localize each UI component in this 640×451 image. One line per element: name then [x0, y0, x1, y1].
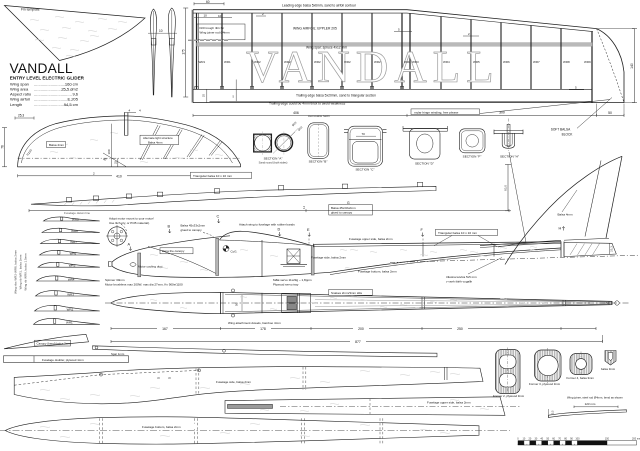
svg-text:WR7: WR7: [533, 60, 540, 64]
svg-text:Adopt motor mount to your moto: Adopt motor mount to your motor!: [109, 216, 154, 220]
svg-text:Triangular balsa 10 x 10 mm: Triangular balsa 10 x 10 mm: [193, 174, 233, 178]
svg-text:70: 70: [362, 132, 366, 136]
svg-text:WR8: WR8: [71, 229, 78, 233]
svg-text:100: 100: [107, 149, 111, 154]
svg-text:v vseh štirih vogalih: v vseh štirih vogalih: [446, 279, 473, 283]
svg-text:SECTION "B": SECTION "B": [309, 160, 328, 164]
svg-text:Drill trough rib1 for: Drill trough rib1 for: [200, 26, 225, 30]
svg-text:25,3: 25,3: [18, 114, 24, 118]
svg-text:VANDALL: VANDALL: [10, 61, 73, 76]
svg-text:5,5: 5,5: [551, 410, 555, 414]
svg-text:M&E servo 11x29g ~ 1,8ppm: M&E servo 11x29g ~ 1,8ppm: [273, 278, 312, 282]
svg-text:200: 200: [358, 327, 364, 331]
svg-text:CoG.: CoG.: [231, 250, 238, 254]
svg-text:10: 10: [159, 29, 163, 33]
svg-text:Spinner 30mm: Spinner 30mm: [105, 278, 125, 282]
svg-text:WR4: WR4: [443, 60, 450, 64]
svg-text:WR2: WR2: [404, 60, 411, 64]
svg-text:Motor brushless max 200W, max: Motor brushless max 200W, max dia 27mm, …: [105, 282, 183, 286]
svg-text:23,3: 23,3: [610, 246, 614, 252]
svg-text:WR2: WR2: [67, 307, 74, 311]
svg-text:WR9: WR9: [584, 60, 591, 64]
svg-text:SECTION "C": SECTION "C": [355, 168, 374, 172]
svg-text:ENTRY LEVEL ELECTRIC GLIDER: ENTRY LEVEL ELECTRIC GLIDER: [10, 76, 85, 81]
svg-text:25: 25: [202, 94, 206, 98]
svg-text:10: 10: [218, 14, 222, 18]
svg-text:WR2: WR2: [344, 60, 351, 64]
svg-text:glued to canopy: glued to canopy: [331, 210, 353, 214]
svg-text:SECTION "A": SECTION "A": [264, 156, 283, 160]
svg-text:WR1: WR1: [199, 60, 206, 64]
svg-text:Plywood servo tray: Plywood servo tray: [273, 282, 299, 286]
svg-text:877: 877: [355, 340, 361, 344]
svg-text:406: 406: [293, 111, 299, 115]
svg-text:balsa 3mm: balsa 3mm: [601, 367, 616, 371]
svg-text:50: 50: [608, 111, 612, 115]
svg-text:WR4: WR4: [68, 277, 75, 281]
svg-text:76: 76: [0, 145, 4, 149]
svg-text:123 mm: 123 mm: [585, 402, 596, 406]
svg-text:Wing rib WR1, balsa 2mm: Wing rib WR1, balsa 2mm: [19, 254, 23, 289]
svg-text:Wing rib WR9, balsa 1.5mm: Wing rib WR9, balsa 1.5mm: [24, 253, 28, 291]
svg-text:Attach wing to fuselage with r: Attach wing to fuselage with rubber band…: [239, 222, 295, 226]
svg-text:Balsa 45x33x2mm: Balsa 45x33x2mm: [181, 224, 206, 228]
svg-text:C: C: [217, 215, 220, 219]
svg-text:WR5: WR5: [69, 264, 76, 268]
svg-text:300: 300: [499, 111, 505, 115]
svg-text:Fuselage datum line: Fuselage datum line: [64, 211, 90, 215]
svg-text:Wing joiner, steel rod Ø4mm, b: Wing joiner, steel rod Ø4mm, bend as sho…: [567, 396, 623, 400]
svg-text:Length: Length: [10, 102, 22, 107]
svg-text:10: 10: [204, 13, 208, 17]
svg-text:Former 3, plywood 3mm: Former 3, plywood 3mm: [529, 382, 561, 386]
svg-text:Fuselage bottom, balsa 2mm: Fuselage bottom, balsa 2mm: [142, 425, 181, 429]
svg-text:Wing spar: spruce 4x12 mm: Wing spar: spruce 4x12 mm: [306, 45, 347, 49]
svg-text:Spar 1mm: Spar 1mm: [111, 352, 125, 356]
svg-text:WR2: WR2: [254, 60, 261, 64]
svg-text:178: 178: [260, 327, 266, 331]
svg-text:SECTION "F": SECTION "F": [463, 155, 482, 159]
svg-text:WR2: WR2: [374, 60, 381, 64]
svg-text:250: 250: [457, 327, 463, 331]
svg-text:50: 50: [235, 303, 239, 307]
svg-text:WR6: WR6: [70, 251, 77, 255]
svg-text:WR3: WR3: [412, 60, 419, 64]
svg-text:SECTION "D": SECTION "D": [415, 162, 434, 166]
svg-text:SOFT BALSA: SOFT BALSA: [551, 128, 571, 132]
svg-text:WR1: WR1: [66, 321, 73, 325]
svg-text:Fuselage side, balsa 2mm: Fuselage side, balsa 2mm: [216, 380, 252, 384]
svg-text:140: 140: [630, 63, 634, 69]
svg-text:Use litch-ply, or PCB material: Use litch-ply, or PCB material).: [109, 221, 150, 225]
svg-text:Triangular balsa 10 x 10 mm: Triangular balsa 10 x 10 mm: [438, 231, 478, 235]
svg-text:Balsa 45x33x2mm: Balsa 45x33x2mm: [331, 206, 356, 210]
svg-text:WR8: WR8: [563, 60, 570, 64]
svg-text:Former 2, plywood 3mm: Former 2, plywood 3mm: [493, 394, 525, 398]
svg-text:glued to canopy: glued to canopy: [181, 228, 203, 232]
svg-text:Removable hatch: Removable hatch: [308, 114, 330, 118]
svg-text:WR6: WR6: [503, 60, 510, 64]
svg-text:Motor cooling duct: Motor cooling duct: [138, 264, 163, 268]
svg-text:Zepa the canopy: Zepa the canopy: [162, 249, 185, 253]
svg-text:Sand round (both sides): Sand round (both sides): [259, 161, 288, 165]
svg-text:150: 150: [605, 437, 610, 440]
svg-text:H: H: [559, 227, 562, 231]
svg-text:Fuselage side, balsa 2mm: Fuselage side, balsa 2mm: [311, 255, 347, 259]
svg-text:WR9: WR9: [72, 217, 79, 221]
svg-text:100: 100: [575, 437, 580, 440]
svg-text:Wing attachment dowels, bamboo: Wing attachment dowels, bamboo 4mm: [228, 321, 281, 325]
svg-text:60: 60: [206, 0, 210, 4]
svg-text:Balsa 4mm: Balsa 4mm: [49, 143, 65, 147]
svg-text:WR1: WR1: [224, 60, 231, 64]
svg-text:Fuselage bottom, balsa 2mm: Fuselage bottom, balsa 2mm: [358, 270, 397, 274]
svg-text:Balsa 4mm: Balsa 4mm: [558, 213, 574, 217]
svg-text:Canopy (bend) balsa 2mm: Canopy (bend) balsa 2mm: [37, 342, 72, 346]
svg-text:WR2: WR2: [284, 60, 291, 64]
svg-text:14: 14: [302, 206, 306, 210]
svg-text:Fuselage upper side, balsa 2mm: Fuselage upper side, balsa 2mm: [427, 401, 471, 405]
svg-text:83,0: 83,0: [504, 185, 508, 191]
svg-text:Snakes 2mm/3mm slits: Snakes 2mm/3mm slits: [331, 291, 363, 295]
svg-text:trikotna letvica 5x5 mm: trikotna letvica 5x5 mm: [446, 275, 477, 279]
svg-text:Trailing edge balsa 5x20mm, sa: Trailing edge balsa 5x20mm, sand to tria…: [296, 93, 376, 97]
svg-text:BLOCK: BLOCK: [562, 132, 574, 136]
svg-text:Wing ribs WR2-WR8, balsa 2mm: Wing ribs WR2-WR8, balsa 2mm: [14, 250, 18, 295]
svg-text:94,5 cm: 94,5 cm: [64, 102, 79, 107]
svg-text:Balsa 4mm: Balsa 4mm: [148, 141, 163, 145]
svg-text:167: 167: [162, 327, 168, 331]
svg-text:WING AIRFOIL: EPPLER 205: WING AIRFOIL: EPPLER 205: [293, 27, 337, 31]
svg-text:Fin template: Fin template: [21, 8, 40, 12]
svg-text:Fuselage doubler, plywood 1mm: Fuselage doubler, plywood 1mm: [42, 358, 84, 362]
svg-text:VANDALL: VANDALL: [246, 42, 500, 92]
svg-text:40°: 40°: [103, 158, 107, 162]
svg-text:Fuselage upper side, balsa 2mm: Fuselage upper side, balsa 2mm: [349, 237, 393, 241]
svg-text:Former 4, balsa 3mm: Former 4, balsa 3mm: [567, 376, 595, 380]
svg-text:200 mm: 200 mm: [632, 437, 640, 440]
svg-text:D: D: [278, 228, 281, 232]
svg-text:Leading edge balsa 5x6mm, sand: Leading edge balsa 5x6mm, sand to airfoi…: [282, 4, 357, 8]
svg-text:410: 410: [116, 175, 122, 179]
svg-text:Trailing edge could be 4mm thi: Trailing edge could be 4mm thick to avoi…: [269, 102, 346, 106]
svg-text:mylar hinge winding, free plea: mylar hinge winding, free please: [414, 110, 459, 114]
svg-text:WR2: WR2: [314, 60, 321, 64]
svg-text:Wing joiner rod Ø4mm: Wing joiner rod Ø4mm: [200, 31, 231, 35]
svg-text:WR3: WR3: [67, 292, 74, 296]
svg-text:25: 25: [113, 161, 117, 164]
svg-text:WR7: WR7: [70, 240, 77, 244]
svg-text:175: 175: [181, 49, 185, 55]
svg-text:WR5: WR5: [473, 60, 480, 64]
